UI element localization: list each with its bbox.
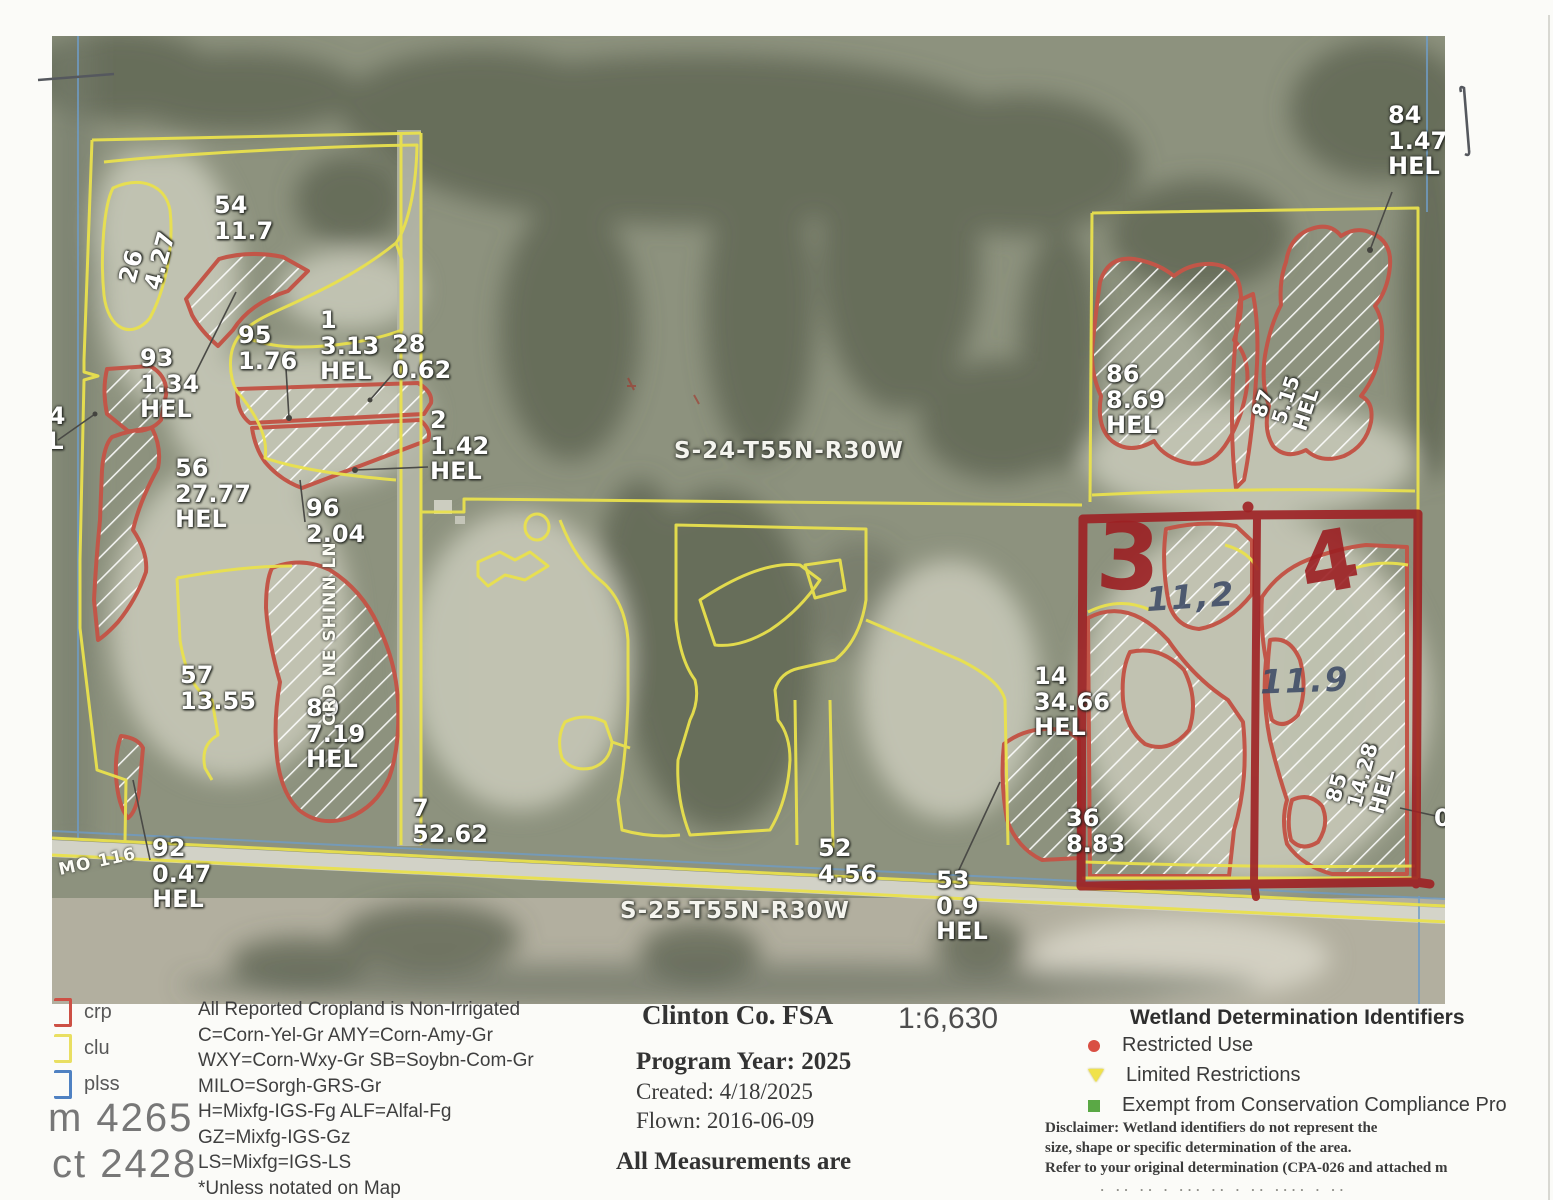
field-label-84: 841.47HEL [1388, 103, 1445, 180]
field-label-85: 8514.28HEL [1322, 735, 1404, 817]
legend-item-clu: clu [54, 1034, 110, 1063]
field-label-86: 868.69HEL [1106, 362, 1165, 439]
field-label-7: 752.62 [412, 796, 488, 847]
field-label-54: 5411.7 [214, 193, 273, 244]
disclaimer-line: size, shape or specific determination of… [1045, 1138, 1447, 1158]
wetland-legend-title: Wetland Determination Identifiers [1130, 1006, 1465, 1030]
legend-label: plss [84, 1073, 120, 1096]
red-dot-icon [1088, 1040, 1100, 1052]
crp-boundary-icon [54, 998, 72, 1027]
green-square-icon [1088, 1100, 1100, 1112]
road-label: CRD NE SHINN LN [320, 541, 340, 726]
flown-date: Flown: 2016-06-09 [636, 1108, 814, 1134]
pen-written-value-11,2: 11,2 [1145, 577, 1237, 616]
field-label-57: 5713.55 [180, 663, 256, 714]
county-office: Clinton Co. FSA [642, 1000, 833, 1031]
road-label: MO 116 [57, 844, 138, 880]
disclaimer-line: Refer to your original determination (CP… [1045, 1158, 1447, 1178]
cropland-note-line: C=Corn-Yel-Gr AMY=Corn-Amy-Gr [198, 1023, 534, 1049]
wetland-item-label: Restricted Use [1122, 1034, 1253, 1057]
wetland-item: Exempt from Conservation Compliance Pro [1088, 1094, 1507, 1117]
map-scale: 1:6,630 [898, 1002, 998, 1036]
yellow-triangle-icon [1088, 1069, 1104, 1082]
field-label-28: 280.62 [392, 332, 451, 383]
legend-item-plss: plss [54, 1070, 120, 1099]
cropland-note-line: MILO=Sorgh-GRS-Gr [198, 1074, 534, 1100]
clu-boundary-icon [54, 1034, 72, 1063]
field-label-93: 931.34HEL [140, 346, 199, 423]
field-label-87: 875.15HEL [1249, 367, 1325, 434]
wetland-item-label: Exempt from Conservation Compliance Pro [1122, 1094, 1507, 1117]
field-label-1: 13.13HEL [320, 308, 379, 385]
map-labels-layer: 5411.7264.27931.34HEL951.7613.13HEL280.6… [52, 36, 1445, 1004]
clipped-text-fragment: · ·· ·· · ··· ·· · ·· ···· · ·· [1100, 1182, 1348, 1198]
field-label-36: 368.83 [1066, 806, 1125, 857]
legend-item-crp: crp [54, 998, 112, 1027]
field-label-96: 962.04 [306, 496, 365, 547]
tract-number: ct 2428 [52, 1142, 197, 1187]
program-year: Program Year: 2025 [636, 1048, 851, 1076]
scanned-fsa-map-page: 5411.7264.27931.34HEL951.7613.13HEL280.6… [0, 0, 1553, 1200]
legend-label: crp [84, 1001, 112, 1024]
legend-label: clu [84, 1037, 110, 1060]
pen-written-value-11.9: 11.9 [1259, 662, 1350, 698]
field-label-95: 951.76 [238, 323, 297, 374]
cropland-note-line: All Reported Cropland is Non-Irrigated [198, 997, 534, 1023]
cropland-note-line: *Unless notated on Map [198, 1176, 534, 1200]
field-label-53: 530.9HEL [936, 868, 988, 945]
cropland-note-line: H=Mixfg-IGS-Fg ALF=Alfal-Fg [198, 1099, 534, 1125]
field-label-26: 264.27 [115, 222, 180, 292]
cropland-notes: All Reported Cropland is Non-IrrigatedC=… [198, 997, 534, 1200]
cropland-note-line: LS=Mixfg=IGS-LS [198, 1150, 534, 1176]
cropland-note-line: WXY=Corn-Wxy-Gr SB=Soybn-Com-Gr [198, 1048, 534, 1074]
field-label-left-partial: 084EL [52, 378, 65, 455]
hand-drawn-number-4: 4 [1293, 516, 1365, 609]
wetland-item: Restricted Use [1088, 1034, 1253, 1057]
form-number: m 4265 [48, 1096, 193, 1141]
section-label: S-24-T55N-R30W [674, 438, 904, 464]
section-label: S-25-T55N-R30W [620, 898, 850, 924]
cropland-note-line: GZ=Mixfg-IGS-Gz [198, 1125, 534, 1151]
field-label-right-partial: 0 [1434, 806, 1445, 832]
field-label-92: 920.47HEL [152, 836, 211, 913]
field-label-56: 5627.77HEL [175, 456, 251, 533]
plss-boundary-icon [54, 1070, 72, 1099]
disclaimer-line: Disclaimer: Wetland identifiers do not r… [1045, 1118, 1447, 1138]
field-label-52: 524.56 [818, 836, 877, 887]
wetland-item-label: Limited Restrictions [1126, 1064, 1301, 1087]
wetland-disclaimer: Disclaimer: Wetland identifiers do not r… [1045, 1118, 1447, 1178]
field-label-14: 1434.66HEL [1034, 664, 1110, 741]
measurements-note: All Measurements are [616, 1148, 851, 1176]
created-date: Created: 4/18/2025 [636, 1079, 813, 1105]
wetland-item: Limited Restrictions [1088, 1064, 1301, 1087]
field-label-2: 21.42HEL [430, 408, 489, 485]
